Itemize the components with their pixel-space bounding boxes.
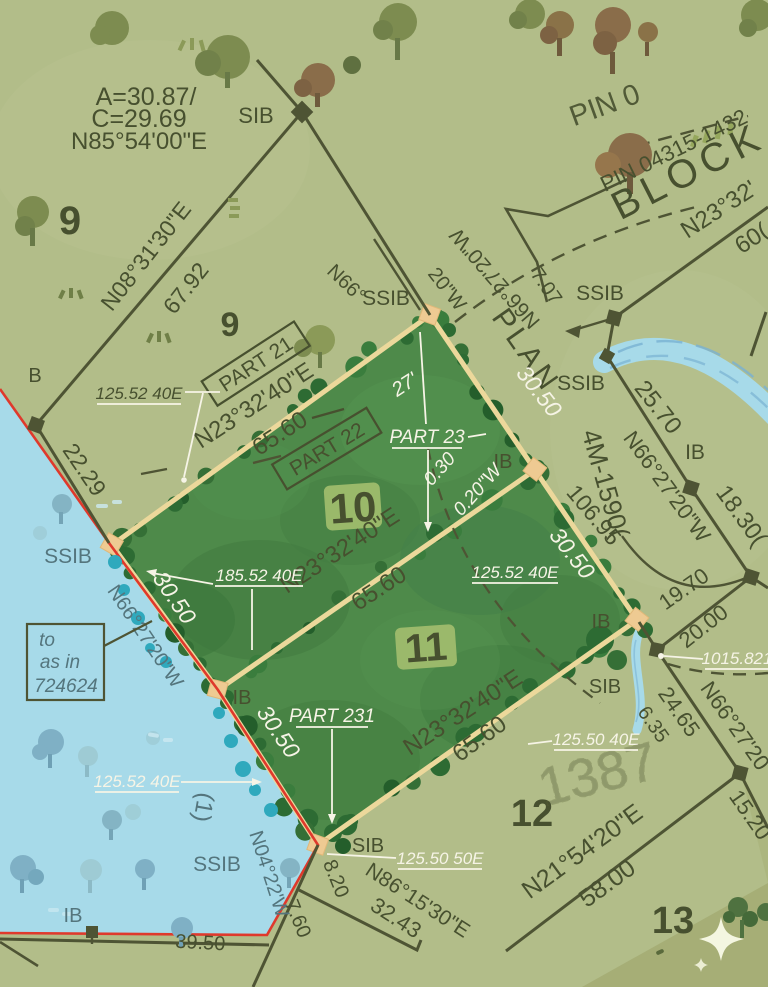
svg-text:PART 231: PART 231 xyxy=(289,706,375,727)
svg-text:to: to xyxy=(39,630,55,651)
svg-text:SIB: SIB xyxy=(352,835,384,857)
svg-text:125.52 40E: 125.52 40E xyxy=(96,384,184,403)
svg-text:B: B xyxy=(28,365,41,387)
svg-text:SSIB: SSIB xyxy=(576,282,624,305)
svg-text:as in: as in xyxy=(40,652,80,673)
svg-text:IB: IB xyxy=(592,611,611,633)
svg-text:SSIB: SSIB xyxy=(44,545,92,568)
svg-text:9: 9 xyxy=(221,306,240,344)
svg-text:39.50: 39.50 xyxy=(175,931,226,956)
svg-text:SIB: SIB xyxy=(238,103,273,128)
svg-text:125.52 40E: 125.52 40E xyxy=(94,772,182,791)
svg-text:IB: IB xyxy=(233,687,252,709)
svg-text:SSIB: SSIB xyxy=(557,372,605,395)
svg-text:SIB: SIB xyxy=(589,676,621,698)
svg-text:SSIB: SSIB xyxy=(193,853,241,876)
svg-text:N85°54'00"E: N85°54'00"E xyxy=(71,128,207,155)
svg-text:125.52 40E: 125.52 40E xyxy=(472,563,560,582)
svg-text:9: 9 xyxy=(59,199,81,243)
svg-text:(1): (1) xyxy=(188,791,220,825)
svg-text:PART 23: PART 23 xyxy=(389,427,465,448)
svg-text:125.50 50E: 125.50 50E xyxy=(397,849,485,868)
svg-text:11: 11 xyxy=(403,625,448,672)
svg-text:13: 13 xyxy=(652,900,694,942)
svg-text:IB: IB xyxy=(685,441,705,464)
svg-text:724624: 724624 xyxy=(34,676,97,697)
svg-text:185.52 40E: 185.52 40E xyxy=(216,566,304,585)
svg-text:IB: IB xyxy=(64,905,83,927)
svg-text:1015.821: 1015.821 xyxy=(702,649,768,668)
